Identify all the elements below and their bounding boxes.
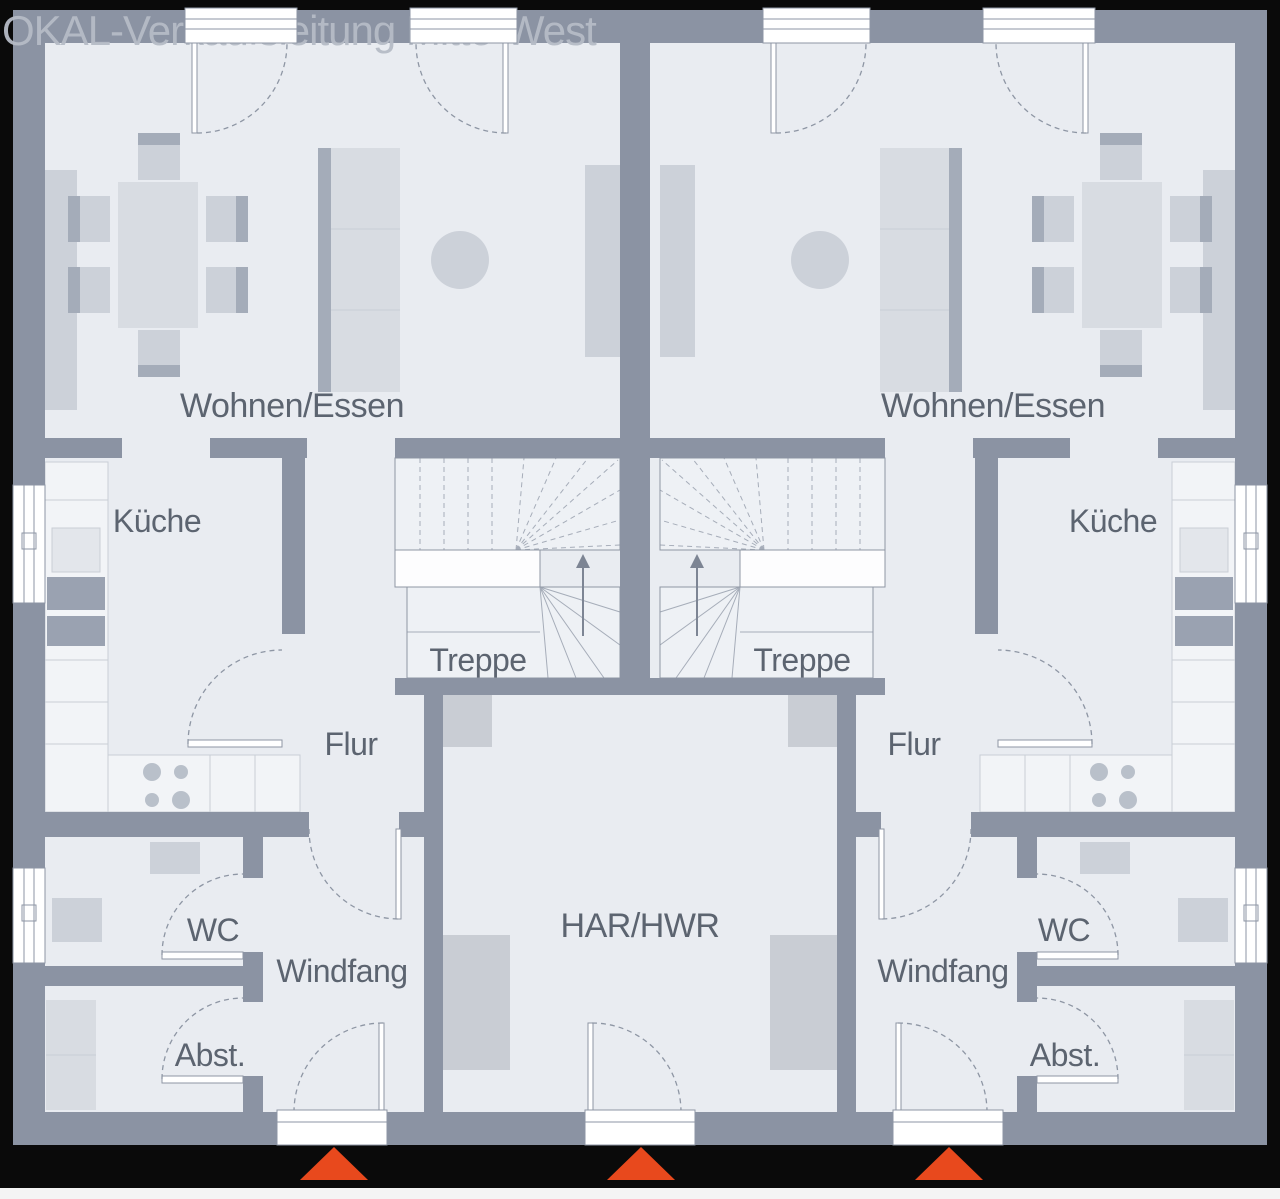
room-label-storage-left: Abst. — [175, 1037, 245, 1073]
room-label-stairs-left: Treppe — [429, 642, 526, 678]
kitchen-counter — [980, 755, 1172, 812]
floor-plan-page: Wohnen/Essen Wohnen/Essen Küche Küche Tr… — [0, 0, 1280, 1199]
room-label-wc-right: WC — [1038, 912, 1090, 948]
washbasin — [52, 898, 102, 942]
room-label-living-right: Wohnen/Essen — [881, 387, 1105, 425]
window — [13, 868, 45, 963]
room-label-living-left: Wohnen/Essen — [180, 387, 404, 425]
bottom-white-strip — [0, 1188, 1280, 1199]
toilet — [150, 842, 200, 874]
door-leaf — [998, 740, 1092, 747]
washbasin — [1178, 898, 1228, 942]
kitchen-sink — [52, 528, 100, 572]
window — [1235, 485, 1267, 603]
stove-burner — [174, 765, 188, 779]
door-leaf — [188, 740, 282, 747]
entrance-door — [277, 1110, 387, 1145]
room-label-vestibule-right: Windfang — [877, 953, 1008, 989]
room-label-kitchen-right: Küche — [1069, 503, 1157, 539]
room-label-vestibule-left: Windfang — [276, 953, 407, 989]
door-leaf — [503, 43, 508, 133]
microwave — [1175, 616, 1233, 646]
entrance-door — [893, 1110, 1003, 1145]
sofa — [585, 165, 620, 357]
room-label-storage-right: Abst. — [1030, 1037, 1100, 1073]
room-label-kitchen-left: Küche — [113, 503, 201, 539]
party-wall — [620, 43, 650, 695]
terrace-door — [410, 8, 517, 43]
kitchen-counter — [108, 755, 300, 812]
door-leaf — [396, 829, 401, 919]
stove-burner — [143, 763, 161, 781]
floor-plan: Wohnen/Essen Wohnen/Essen Küche Küche Tr… — [0, 0, 1280, 1199]
terrace-door — [983, 8, 1095, 43]
terrace-door — [763, 8, 870, 43]
utility-appliance — [770, 935, 837, 1070]
toilet — [1080, 842, 1130, 874]
stove-burner — [1119, 791, 1137, 809]
side-table — [431, 231, 489, 289]
stove-burner — [1121, 765, 1135, 779]
door-leaf — [162, 1076, 243, 1083]
window — [13, 485, 45, 603]
room-label-utility: HAR/HWR — [561, 907, 720, 945]
room-label-hallway-right: Flur — [887, 726, 941, 762]
door-leaf — [1037, 952, 1118, 959]
door-leaf — [1037, 1076, 1118, 1083]
entrance-thresholds — [277, 1110, 1003, 1145]
door-leaf — [379, 1023, 384, 1112]
door-leaf — [192, 43, 197, 133]
kitchen-sink — [1180, 528, 1228, 572]
utility-appliance — [443, 695, 492, 747]
stove-burner — [145, 793, 159, 807]
terrace-door — [185, 8, 297, 43]
sofa — [660, 165, 695, 357]
oven — [47, 577, 105, 610]
room-label-hallway-left: Flur — [324, 726, 378, 762]
window — [1235, 868, 1267, 963]
microwave — [47, 616, 105, 646]
door-leaf — [896, 1023, 901, 1112]
door-leaf — [1083, 43, 1088, 133]
stove-burner — [1090, 763, 1108, 781]
oven — [1175, 577, 1233, 610]
stove-burner — [1092, 793, 1106, 807]
door-leaf — [879, 829, 884, 919]
door-leaf — [162, 952, 243, 959]
dining-table — [118, 182, 198, 328]
utility-appliance — [443, 935, 510, 1070]
dining-table — [1082, 182, 1162, 328]
entrance-door — [585, 1110, 695, 1145]
side-table — [791, 231, 849, 289]
stove-burner — [172, 791, 190, 809]
door-leaf — [588, 1023, 593, 1112]
room-label-stairs-right: Treppe — [753, 642, 850, 678]
utility-appliance — [788, 695, 837, 747]
door-leaf — [771, 43, 776, 133]
room-label-wc-left: WC — [187, 912, 239, 948]
